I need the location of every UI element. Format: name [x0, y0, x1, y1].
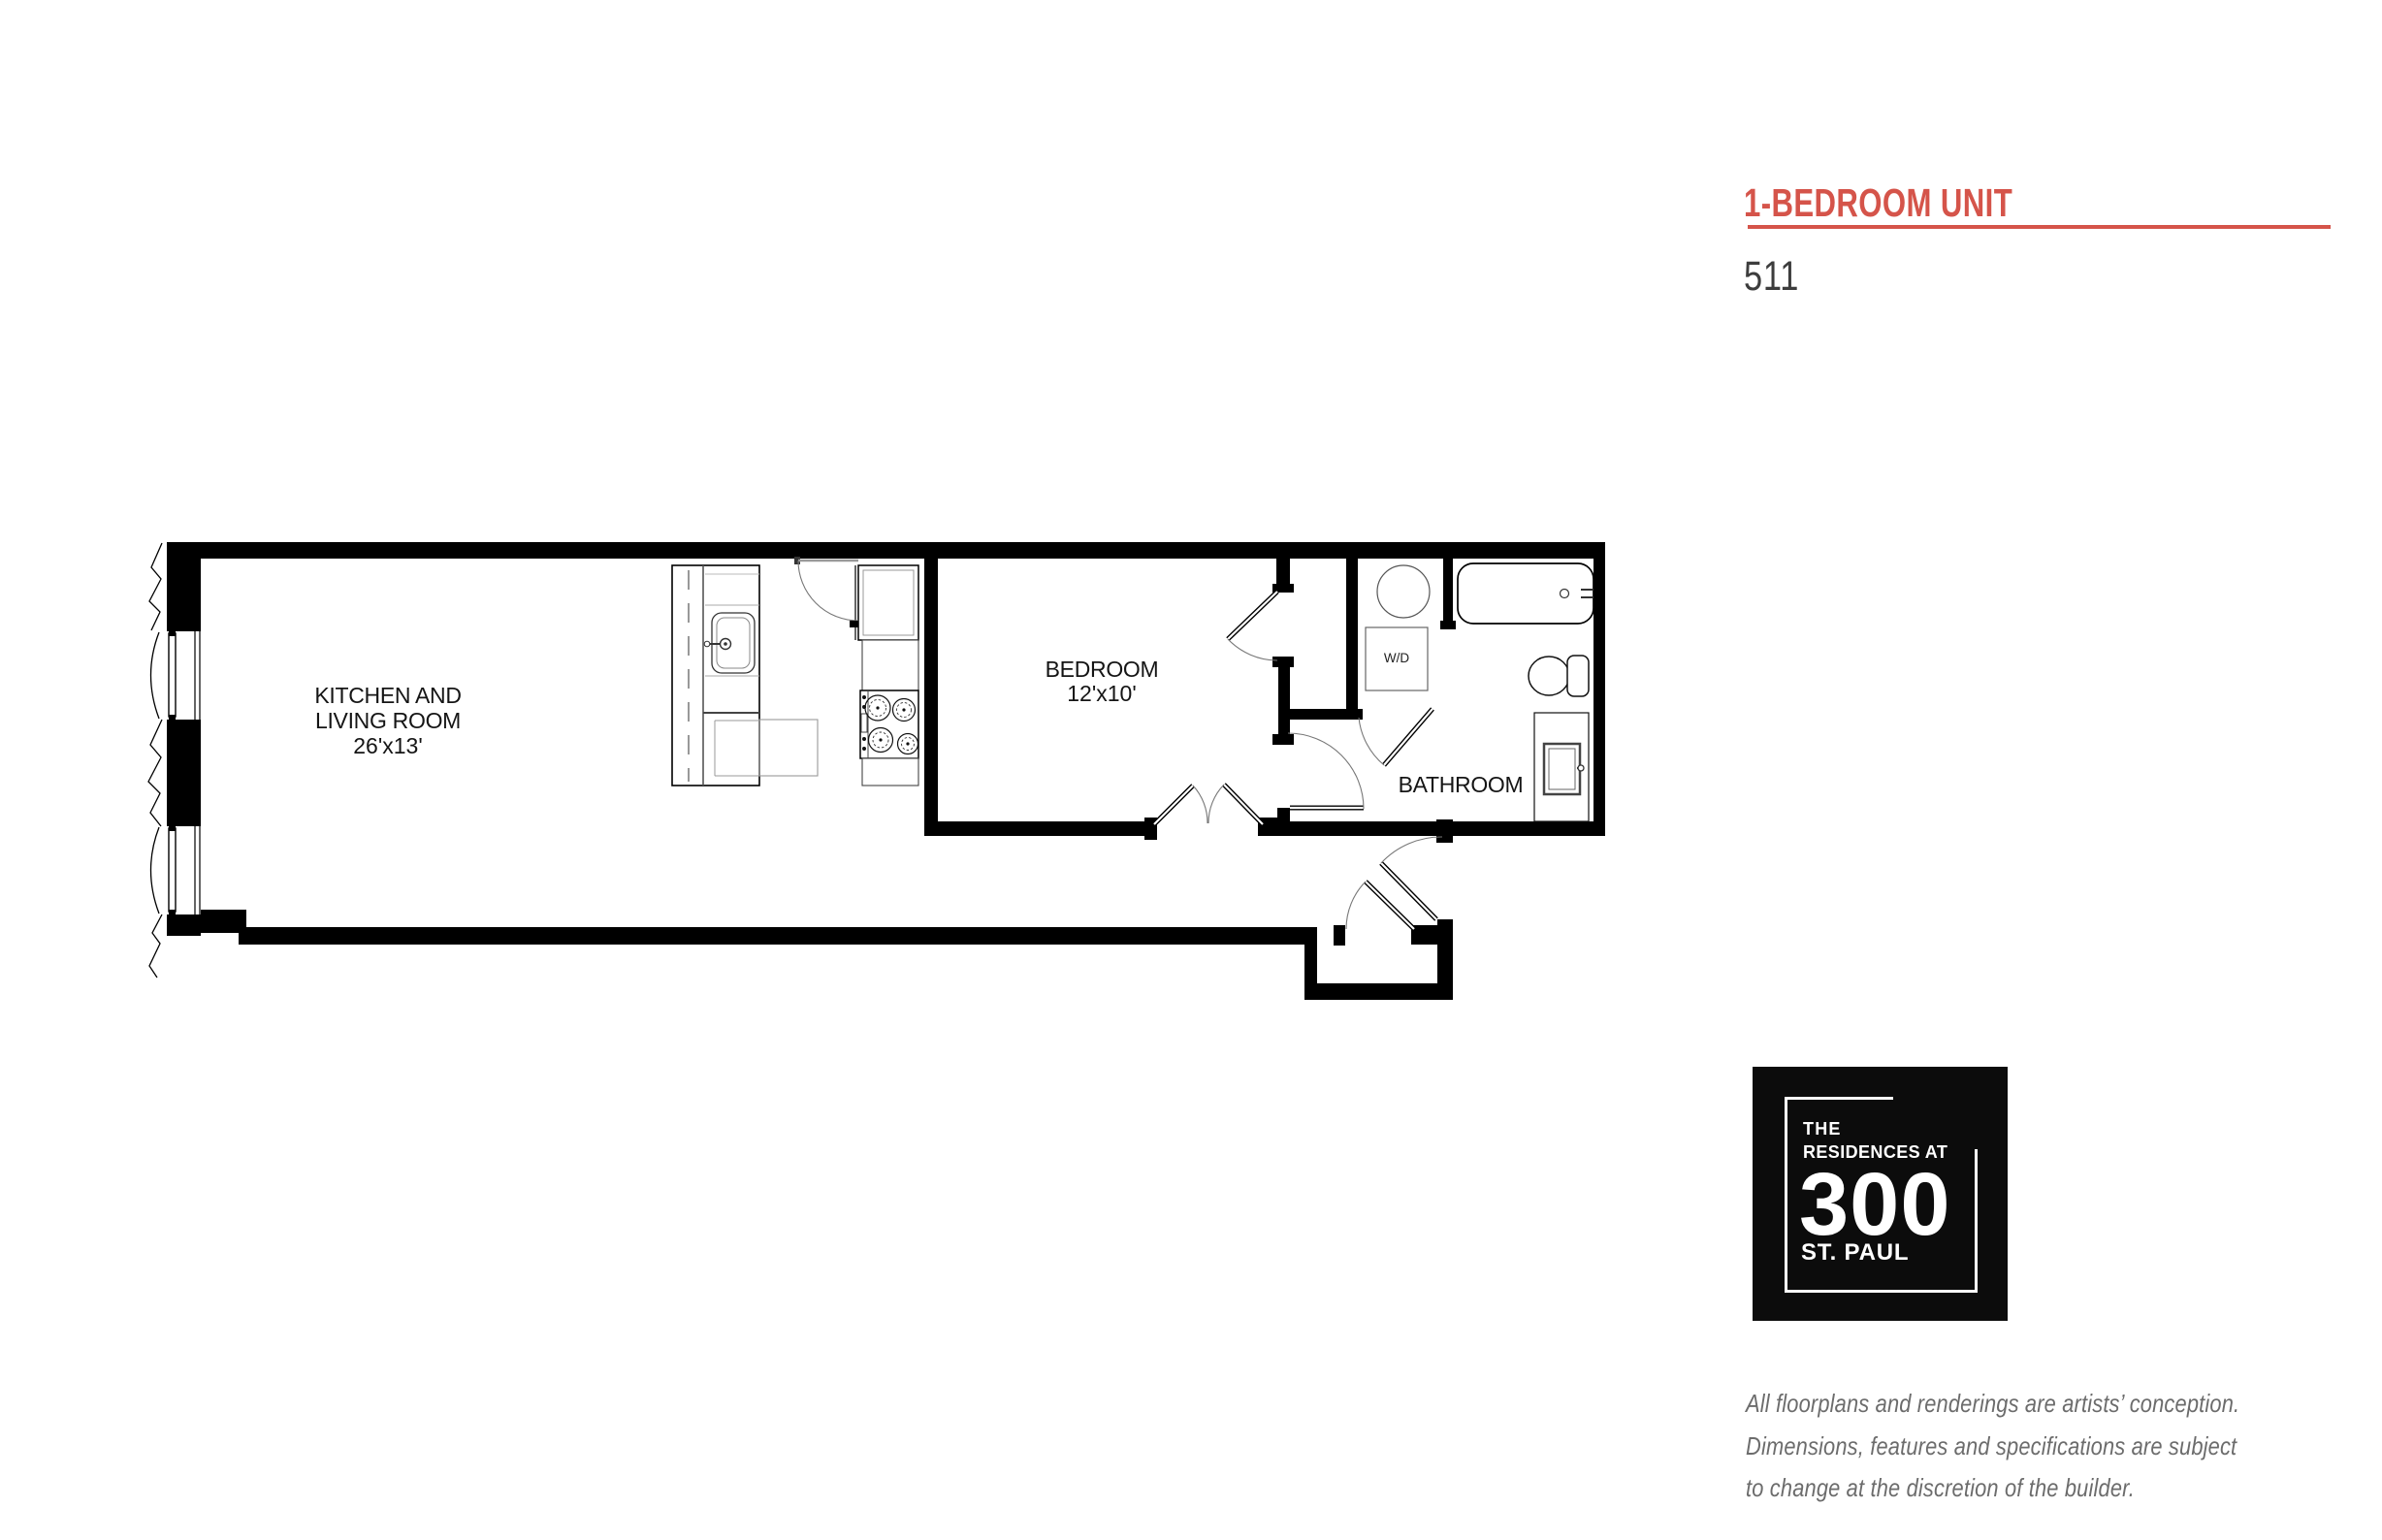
bedroom-closet-door [1228, 592, 1277, 660]
disclaimer-line: All floorplans and renderings are artist… [1746, 1383, 2239, 1426]
room-label-bedroom: BEDROOM 12'x10' [985, 658, 1218, 706]
vanity-sink-icon [1534, 713, 1589, 821]
window-icon [167, 826, 201, 914]
kitchen-island [672, 565, 771, 786]
logo-frame-bottom [1785, 1290, 1978, 1293]
bedroom-french-doors [1154, 785, 1263, 824]
toilet-icon [1529, 656, 1589, 696]
floor-plan-drawing [0, 0, 1649, 1067]
room-dimensions: 26'x13' [252, 733, 524, 758]
logo-text-300: 300 [1799, 1160, 1951, 1249]
exterior-break-lines [148, 543, 162, 978]
laundry-door [1359, 709, 1432, 765]
room-name: KITCHEN AND [252, 683, 524, 708]
disclaimer-line: Dimensions, features and specifications … [1746, 1426, 2239, 1468]
kitchen-counter [862, 640, 918, 690]
kitchen-sink-icon [704, 613, 755, 673]
logo-text-the: THE [1803, 1120, 1842, 1138]
disclaimer-line: to change at the discretion of the build… [1746, 1467, 2239, 1510]
room-label-kitchen-living: KITCHEN AND LIVING ROOM 26'x13' [252, 683, 524, 758]
refrigerator-icon [855, 565, 918, 640]
room-dimensions: 12'x10' [985, 682, 1218, 706]
pantry-door [794, 557, 858, 627]
stove-icon [860, 690, 918, 758]
room-label-laundry: W/D [1367, 651, 1427, 665]
dining-table [759, 720, 818, 776]
room-label-bathroom: BATHROOM [1354, 772, 1567, 797]
unit-number: 511 [1744, 253, 1799, 301]
room-name: LIVING ROOM [252, 708, 524, 733]
bathtub-icon [1458, 563, 1593, 624]
logo-text-st-paul: ST. PAUL [1801, 1241, 1909, 1265]
brand-logo: THE RESIDENCES AT 300 ST. PAUL [1753, 1067, 2008, 1321]
logo-frame-top [1785, 1097, 1893, 1100]
logo-frame-left [1785, 1097, 1787, 1293]
title-underline [1748, 225, 2331, 229]
logo-frame-right [1975, 1149, 1978, 1293]
page-title: 1-BEDROOM UNIT [1744, 180, 2012, 226]
kitchen-counter [862, 758, 918, 786]
disclaimer-text: All floorplans and renderings are artist… [1746, 1383, 2239, 1510]
room-name: BEDROOM [985, 658, 1218, 682]
entry-door [1346, 837, 1442, 929]
window-icon [167, 631, 201, 720]
bedroom-door [1288, 733, 1364, 809]
room-name: BATHROOM [1354, 772, 1567, 797]
floorplan-flyer-page: KITCHEN AND LIVING ROOM 26'x13' BEDROOM … [0, 0, 2382, 1540]
washer-icon [1377, 565, 1430, 618]
